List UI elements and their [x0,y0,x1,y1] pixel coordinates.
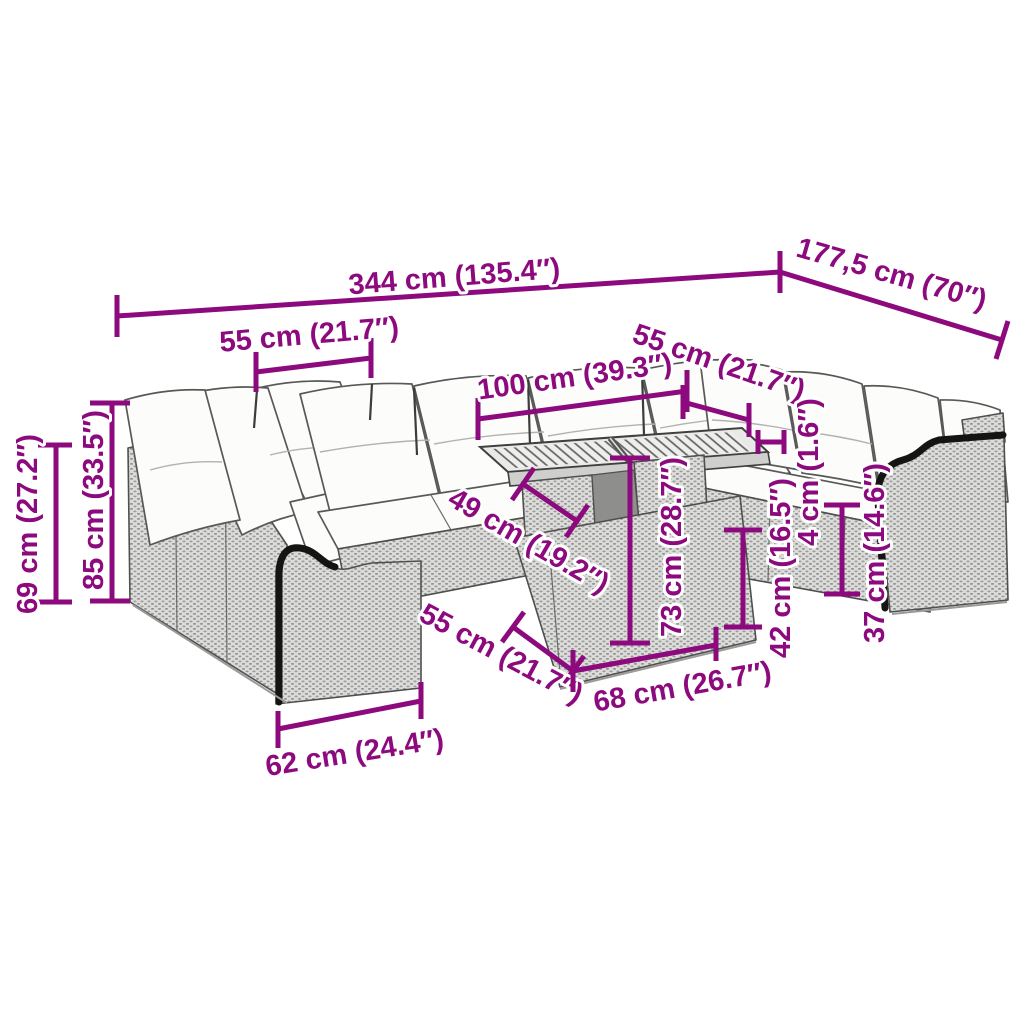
dim-armrest-width-label: 62 cm (24.4″) [263,723,446,783]
dim-backrest-height: 69 cm (27.2″) [12,434,72,614]
dim-armrest-height-label: 37 cm (14.6″) [859,463,891,643]
dim-backrest-height-label: 69 cm (27.2″) [12,434,44,614]
dim-total-depth: 177,5 cm (70″) [780,232,1008,359]
dimension-diagram-page: 344 cm (135.4″) 177,5 cm (70″) 55 cm (21… [0,0,1024,1024]
dim-seat-height-label: 42 cm (16.5″) [765,478,797,658]
dim-total-height: 85 cm (33.5″) [78,403,130,601]
furniture-dimension-diagram: 344 cm (135.4″) 177,5 cm (70″) 55 cm (21… [0,0,1024,1024]
dim-total-height-label: 85 cm (33.5″) [78,410,110,590]
dim-total-width: 344 cm (135.4″) [117,251,780,337]
dim-table-height-label: 73 cm (28.7″) [656,457,688,637]
dim-left-seat-width: 55 cm (21.7″) [218,311,400,392]
left-armrest [276,549,421,704]
dim-cushion-thickness-label: 4 cm (1.6″) [793,398,825,546]
